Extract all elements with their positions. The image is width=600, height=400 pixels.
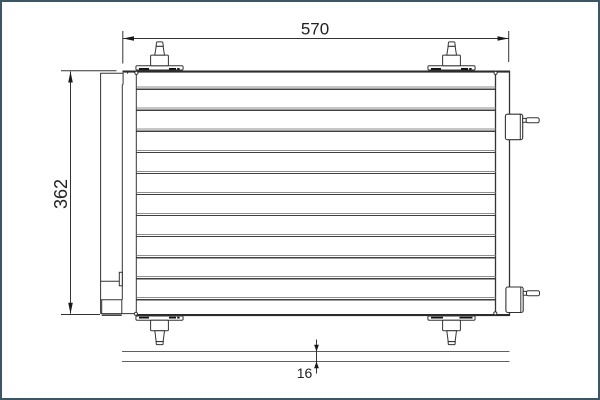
svg-text:16: 16 (297, 365, 313, 381)
svg-text:570: 570 (301, 20, 329, 39)
svg-text:362: 362 (51, 179, 71, 209)
